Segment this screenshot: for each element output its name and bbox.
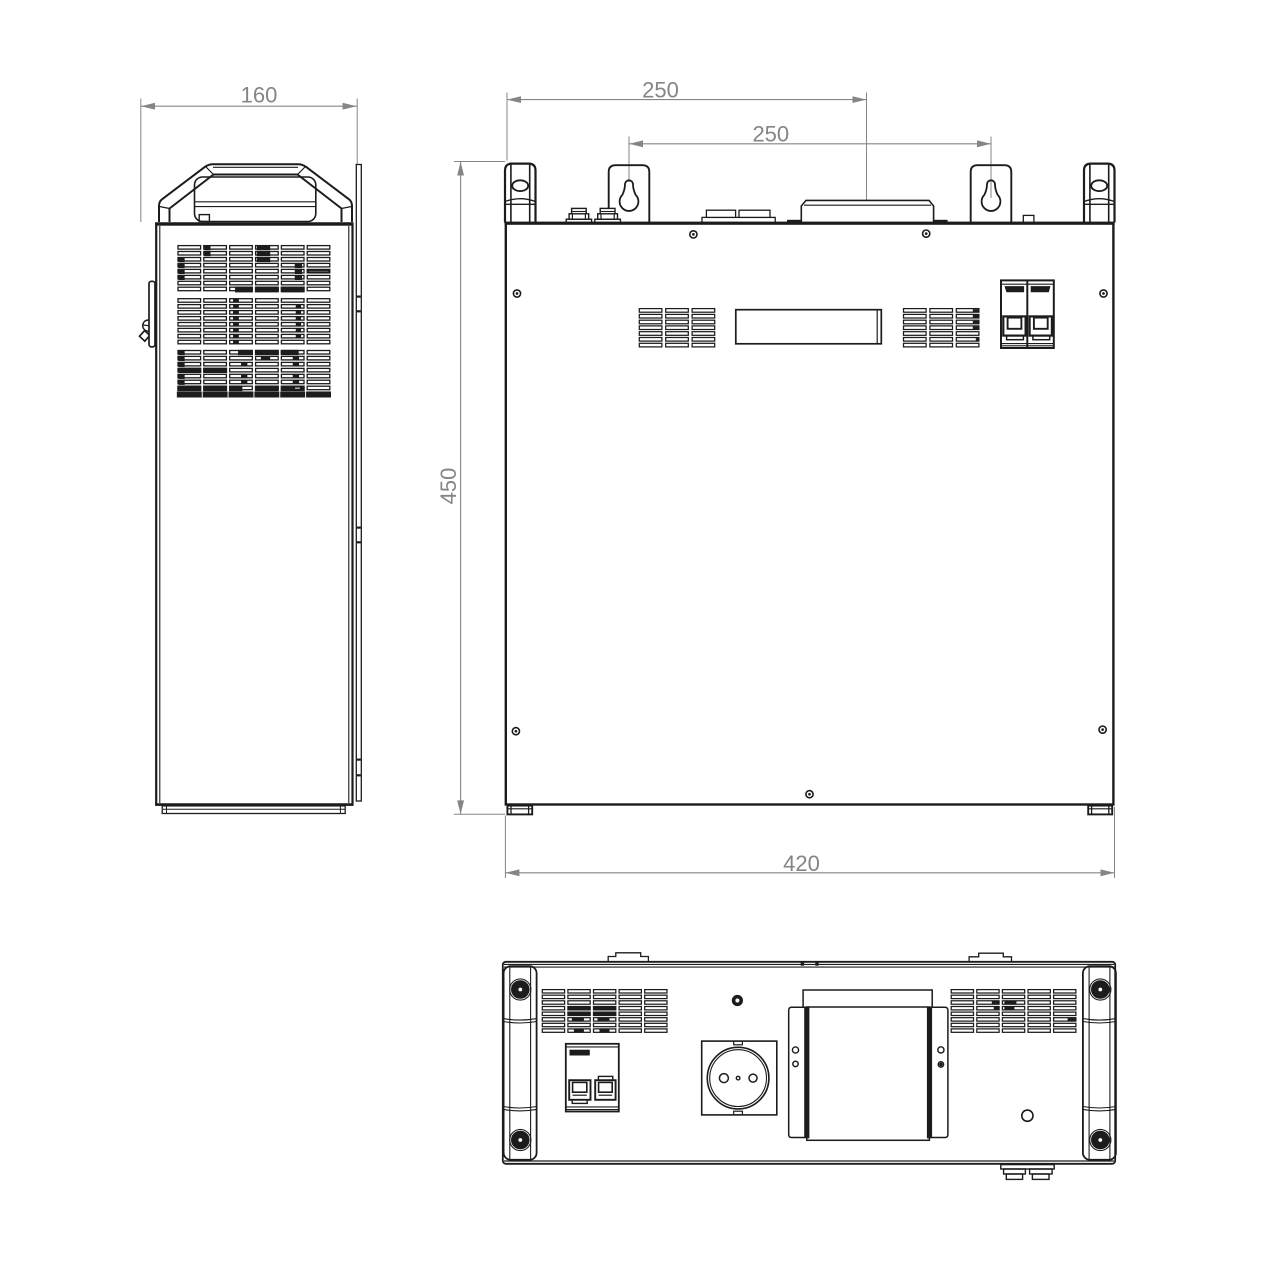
svg-text:250: 250: [752, 122, 789, 147]
svg-text:160: 160: [241, 83, 278, 108]
svg-text:450: 450: [436, 468, 461, 505]
svg-text:250: 250: [642, 78, 679, 103]
